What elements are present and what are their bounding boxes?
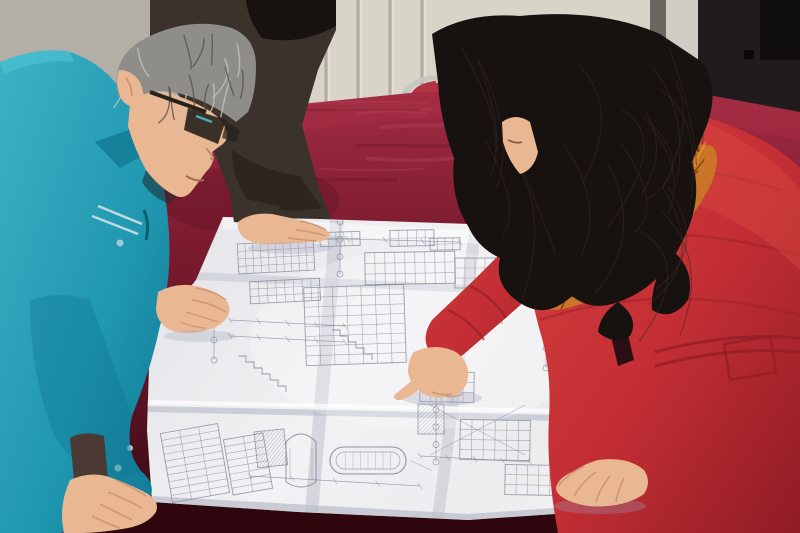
right-hand-shadow (164, 330, 236, 342)
velvet-streak (335, 109, 433, 110)
photo-canvas (0, 0, 800, 533)
snap-button-1 (117, 240, 124, 247)
gray-strand (212, 34, 213, 66)
hand-shadow (248, 242, 332, 254)
door-top-dark (760, 0, 800, 60)
door-lock-plate (744, 50, 754, 59)
